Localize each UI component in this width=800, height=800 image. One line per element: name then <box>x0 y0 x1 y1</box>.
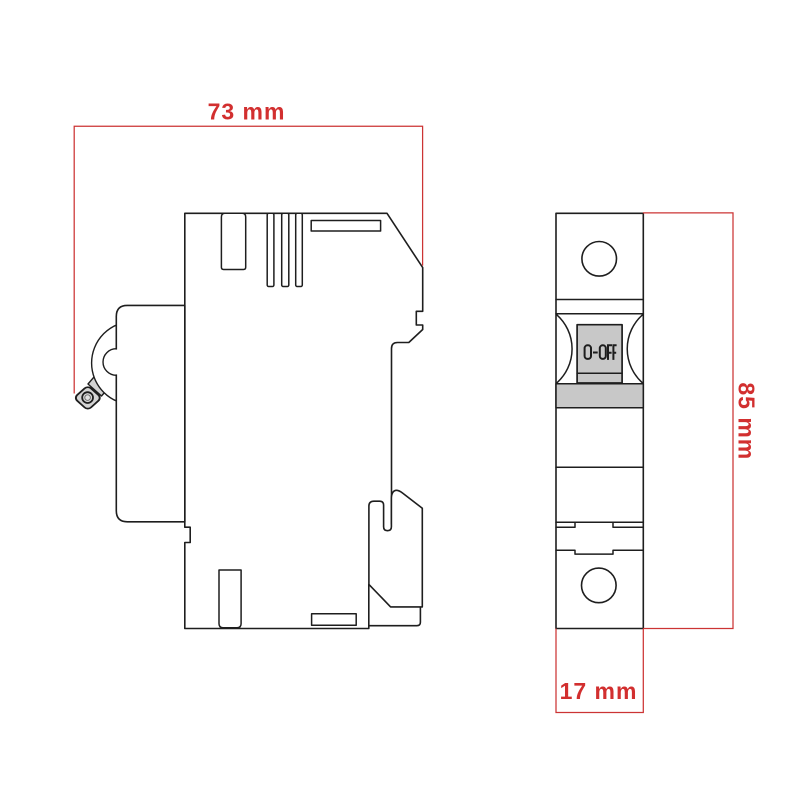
svg-text:85 mm: 85 mm <box>734 382 760 460</box>
svg-text:73 mm: 73 mm <box>208 99 286 125</box>
svg-text:17 mm: 17 mm <box>560 678 638 704</box>
